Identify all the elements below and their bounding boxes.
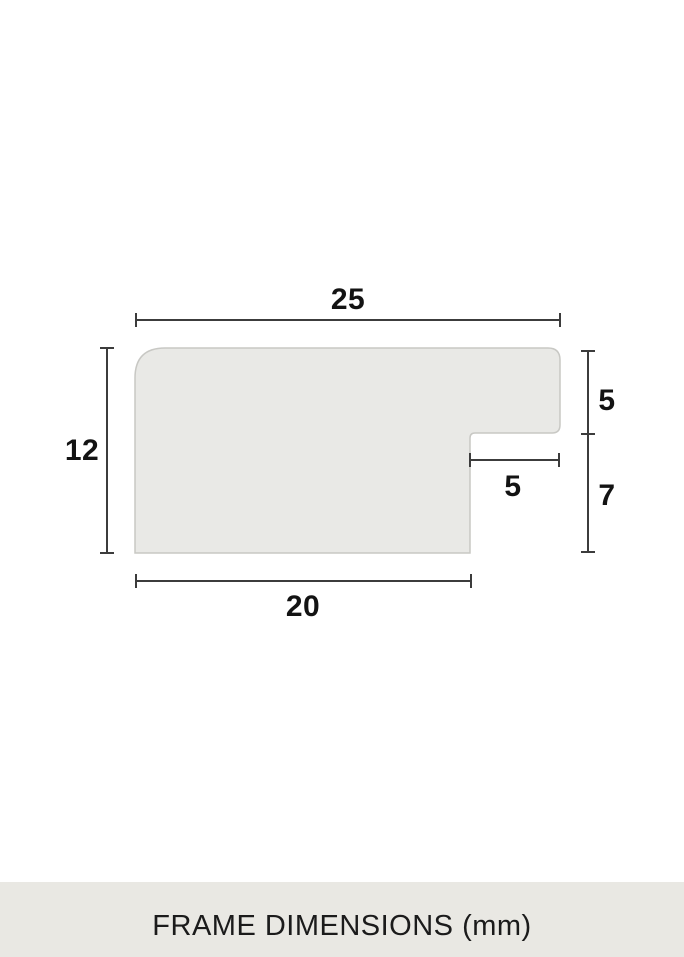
- dim-label-top-width: 25: [136, 285, 560, 315]
- dim-line-right-heights: [581, 351, 595, 552]
- dim-label-bottom-width: 20: [236, 592, 370, 622]
- caption-bar: FRAME DIMENSIONS (mm): [0, 882, 684, 957]
- dim-label-right-upper: 5: [585, 386, 629, 416]
- dim-line-rabbet-width: [470, 453, 559, 467]
- dim-label-rabbet-width: 5: [491, 472, 535, 502]
- dim-line-bottom-width: [136, 574, 471, 588]
- dim-label-left-height: 12: [56, 436, 108, 466]
- caption-text: FRAME DIMENSIONS (mm): [152, 912, 531, 941]
- frame-profile-shape: [135, 348, 560, 553]
- frame-dimensions-screen: 25 12 5 7 5 20 FRAME DIMENSIONS (mm): [0, 0, 684, 957]
- dim-label-right-lower: 7: [585, 481, 629, 511]
